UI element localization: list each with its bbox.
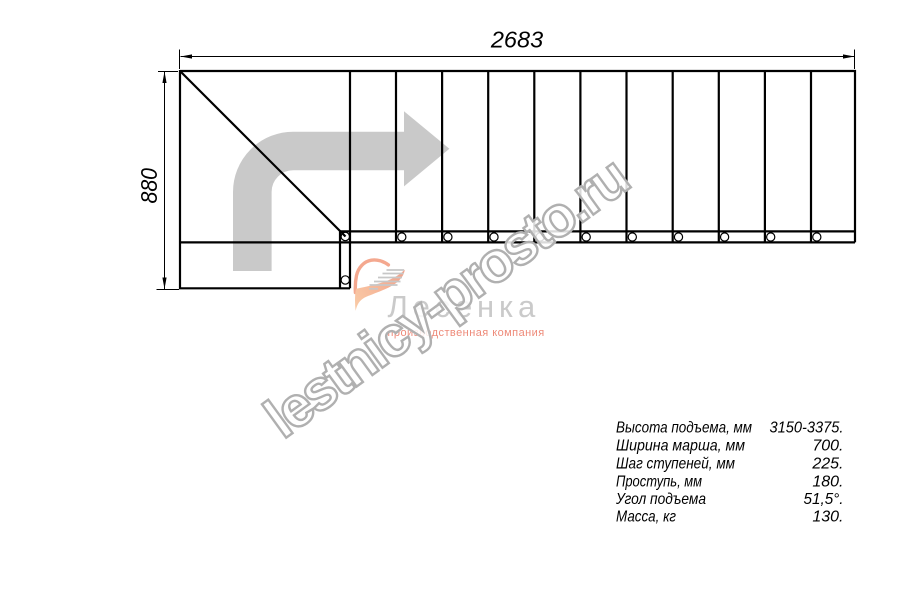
svg-text:Угол подъема: Угол подъема: [615, 491, 706, 508]
svg-text:180.: 180.: [812, 473, 843, 490]
svg-text:700.: 700.: [812, 438, 843, 455]
svg-text:3150-3375.: 3150-3375.: [770, 420, 844, 437]
svg-text:Шаг ступеней, мм: Шаг ступеней, мм: [616, 456, 735, 473]
svg-text:2683: 2683: [490, 27, 543, 53]
svg-text:Ширина марша, мм: Ширина марша, мм: [616, 438, 745, 455]
svg-text:880: 880: [136, 168, 162, 204]
svg-text:51,5°.: 51,5°.: [804, 491, 844, 508]
svg-text:Масса, кг: Масса, кг: [616, 509, 676, 526]
svg-text:Проступь, мм: Проступь, мм: [616, 473, 702, 490]
svg-text:130.: 130.: [812, 509, 843, 526]
svg-text:Высота подъема, мм: Высота подъема, мм: [616, 420, 752, 437]
svg-text:225.: 225.: [811, 456, 843, 473]
